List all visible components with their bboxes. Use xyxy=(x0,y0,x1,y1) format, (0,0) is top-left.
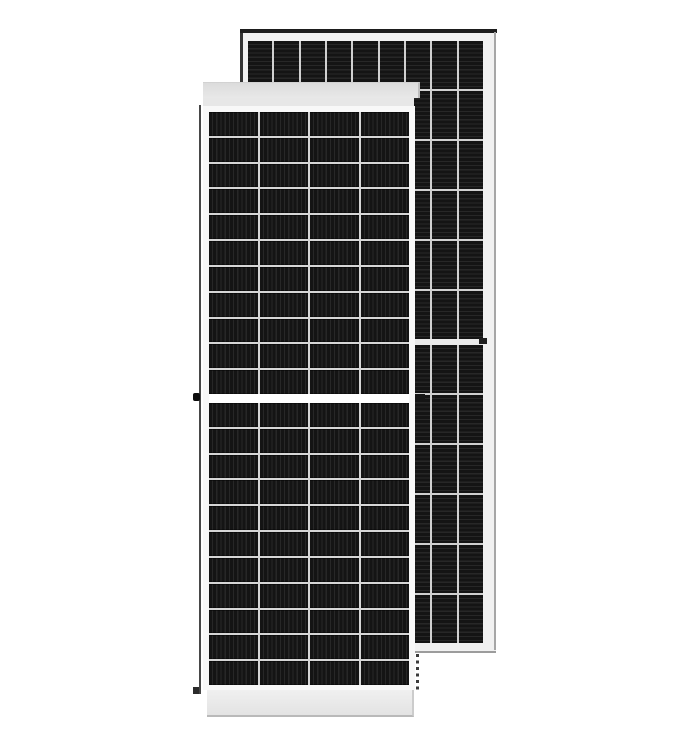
solar-cell xyxy=(209,661,258,685)
solar-cell xyxy=(260,635,309,659)
solar-cell xyxy=(361,661,410,685)
solar-cell xyxy=(209,429,258,453)
solar-cell xyxy=(209,189,258,213)
solar-cell xyxy=(310,370,359,394)
solar-cell xyxy=(209,403,258,427)
front-panel-cells-lower xyxy=(209,403,409,685)
solar-cell xyxy=(361,344,410,368)
solar-cell xyxy=(432,345,456,393)
dashed-hidden-edge xyxy=(416,654,419,691)
solar-cell xyxy=(260,164,309,188)
solar-cell xyxy=(260,293,309,317)
front-panel-bottom-frame-bar xyxy=(207,690,414,717)
solar-cell xyxy=(310,164,359,188)
solar-cell xyxy=(260,506,309,530)
solar-cell xyxy=(459,291,483,339)
solar-cell xyxy=(361,584,410,608)
solar-cell xyxy=(361,215,410,239)
solar-cell xyxy=(310,661,359,685)
solar-cell xyxy=(459,445,483,493)
solar-cell xyxy=(459,595,483,643)
solar-cell xyxy=(432,141,456,189)
solar-cell xyxy=(361,635,410,659)
solar-cell xyxy=(361,293,410,317)
solar-cell xyxy=(432,595,456,643)
solar-cell xyxy=(361,610,410,634)
solar-cell xyxy=(209,215,258,239)
solar-cell xyxy=(209,138,258,162)
solar-cell xyxy=(310,267,359,291)
solar-cell xyxy=(432,445,456,493)
solar-cell xyxy=(209,293,258,317)
solar-cell xyxy=(310,138,359,162)
solar-cell xyxy=(260,138,309,162)
solar-cell xyxy=(310,293,359,317)
solar-cell xyxy=(209,610,258,634)
solar-cell xyxy=(361,164,410,188)
solar-cell xyxy=(209,319,258,343)
solar-cell xyxy=(260,344,309,368)
solar-cell xyxy=(260,319,309,343)
solar-cell xyxy=(260,480,309,504)
rear-panel-frame-clip xyxy=(479,338,487,344)
solar-cell xyxy=(310,532,359,556)
solar-cell xyxy=(209,241,258,265)
solar-cell xyxy=(361,138,410,162)
solar-cell xyxy=(432,241,456,289)
rear-panel-top-edge xyxy=(240,29,497,33)
solar-cell xyxy=(209,506,258,530)
solar-cell xyxy=(310,558,359,582)
front-panel-cell-area xyxy=(209,112,409,685)
solar-cell xyxy=(260,429,309,453)
solar-cell xyxy=(310,635,359,659)
solar-cell xyxy=(361,241,410,265)
solar-cell xyxy=(209,112,258,136)
solar-cell xyxy=(361,558,410,582)
solar-cell xyxy=(459,241,483,289)
front-panel-right-frame-clip xyxy=(415,394,425,400)
solar-cell xyxy=(459,345,483,393)
solar-cell xyxy=(260,215,309,239)
solar-cell xyxy=(310,610,359,634)
front-panel-left-mount-dot xyxy=(193,393,200,401)
solar-cell xyxy=(260,532,309,556)
solar-cell xyxy=(310,480,359,504)
solar-cell xyxy=(361,267,410,291)
solar-cell xyxy=(310,403,359,427)
solar-cell xyxy=(260,267,309,291)
solar-cell xyxy=(260,241,309,265)
solar-cell xyxy=(361,112,410,136)
front-panel-cells-upper xyxy=(209,112,409,394)
solar-cell xyxy=(260,403,309,427)
solar-cell xyxy=(209,455,258,479)
solar-cell xyxy=(459,545,483,593)
solar-cell xyxy=(209,370,258,394)
solar-cell xyxy=(260,189,309,213)
solar-cell xyxy=(361,319,410,343)
solar-cell xyxy=(432,91,456,139)
rear-panel-right-edge xyxy=(494,32,497,650)
solar-cell xyxy=(459,191,483,239)
solar-cell xyxy=(459,495,483,543)
solar-cell xyxy=(361,506,410,530)
solar-cell xyxy=(310,215,359,239)
solar-cell xyxy=(310,319,359,343)
solar-cell xyxy=(459,395,483,443)
solar-cell xyxy=(432,495,456,543)
solar-cell xyxy=(209,584,258,608)
solar-cell xyxy=(310,455,359,479)
solar-cell xyxy=(361,455,410,479)
solar-cell xyxy=(459,91,483,139)
solar-cell xyxy=(310,584,359,608)
solar-cell xyxy=(209,558,258,582)
solar-cell xyxy=(361,429,410,453)
front-solar-panel xyxy=(203,106,415,690)
solar-cell xyxy=(209,480,258,504)
solar-cell xyxy=(209,164,258,188)
solar-cell xyxy=(459,41,483,89)
front-panel-top-frame-bar xyxy=(203,82,420,98)
solar-cell xyxy=(432,545,456,593)
solar-cell xyxy=(260,112,309,136)
front-panel-center-gap xyxy=(209,394,409,403)
solar-cell xyxy=(260,455,309,479)
solar-cell xyxy=(432,291,456,339)
front-panel-corner-mark xyxy=(193,687,199,694)
solar-cell xyxy=(310,506,359,530)
solar-cell xyxy=(459,141,483,189)
solar-cell xyxy=(361,480,410,504)
solar-cell xyxy=(361,189,410,213)
solar-cell xyxy=(361,370,410,394)
solar-cell xyxy=(310,344,359,368)
solar-cell xyxy=(310,429,359,453)
solar-cell xyxy=(432,191,456,239)
solar-cell xyxy=(432,395,456,443)
solar-cell xyxy=(209,635,258,659)
solar-cell xyxy=(361,532,410,556)
solar-cell xyxy=(209,532,258,556)
solar-cell xyxy=(209,344,258,368)
solar-cell xyxy=(310,112,359,136)
solar-cell xyxy=(310,241,359,265)
product-photo-canvas xyxy=(0,0,684,748)
solar-cell xyxy=(260,584,309,608)
solar-cell xyxy=(209,267,258,291)
solar-cell xyxy=(260,661,309,685)
solar-cell xyxy=(260,558,309,582)
solar-cell xyxy=(361,403,410,427)
solar-cell xyxy=(310,189,359,213)
solar-cell xyxy=(432,41,456,89)
solar-cell xyxy=(260,370,309,394)
solar-cell xyxy=(260,610,309,634)
